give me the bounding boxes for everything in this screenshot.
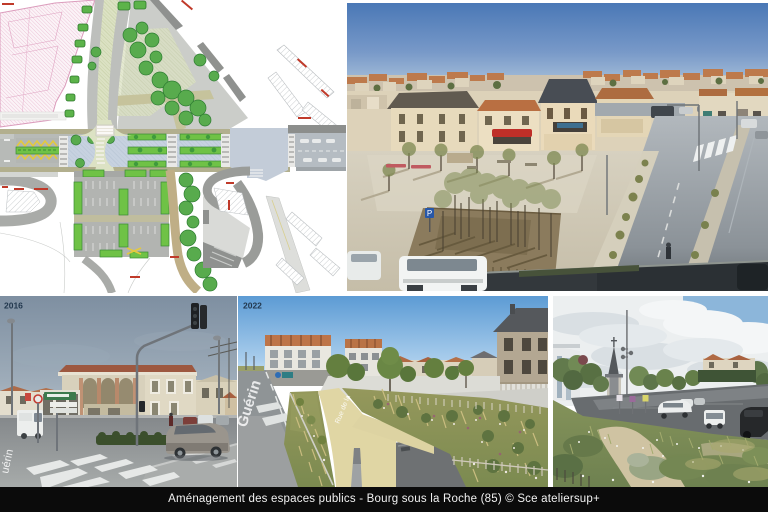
svg-text:P: P (427, 209, 432, 218)
svg-text:2016: 2016 (4, 301, 23, 311)
svg-text:2022: 2022 (243, 301, 262, 311)
